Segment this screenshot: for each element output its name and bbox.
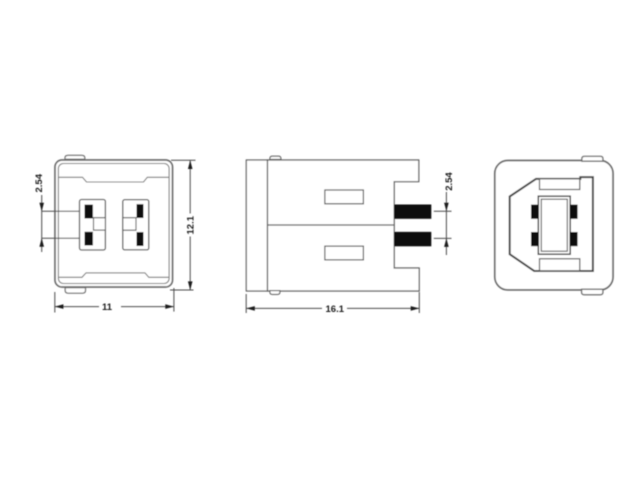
svg-text:12.1: 12.1 (186, 215, 197, 234)
svg-text:2.54: 2.54 (34, 173, 45, 192)
svg-text:11: 11 (102, 302, 113, 313)
svg-text:2.54: 2.54 (444, 172, 455, 191)
svg-text:16.1: 16.1 (326, 304, 345, 315)
